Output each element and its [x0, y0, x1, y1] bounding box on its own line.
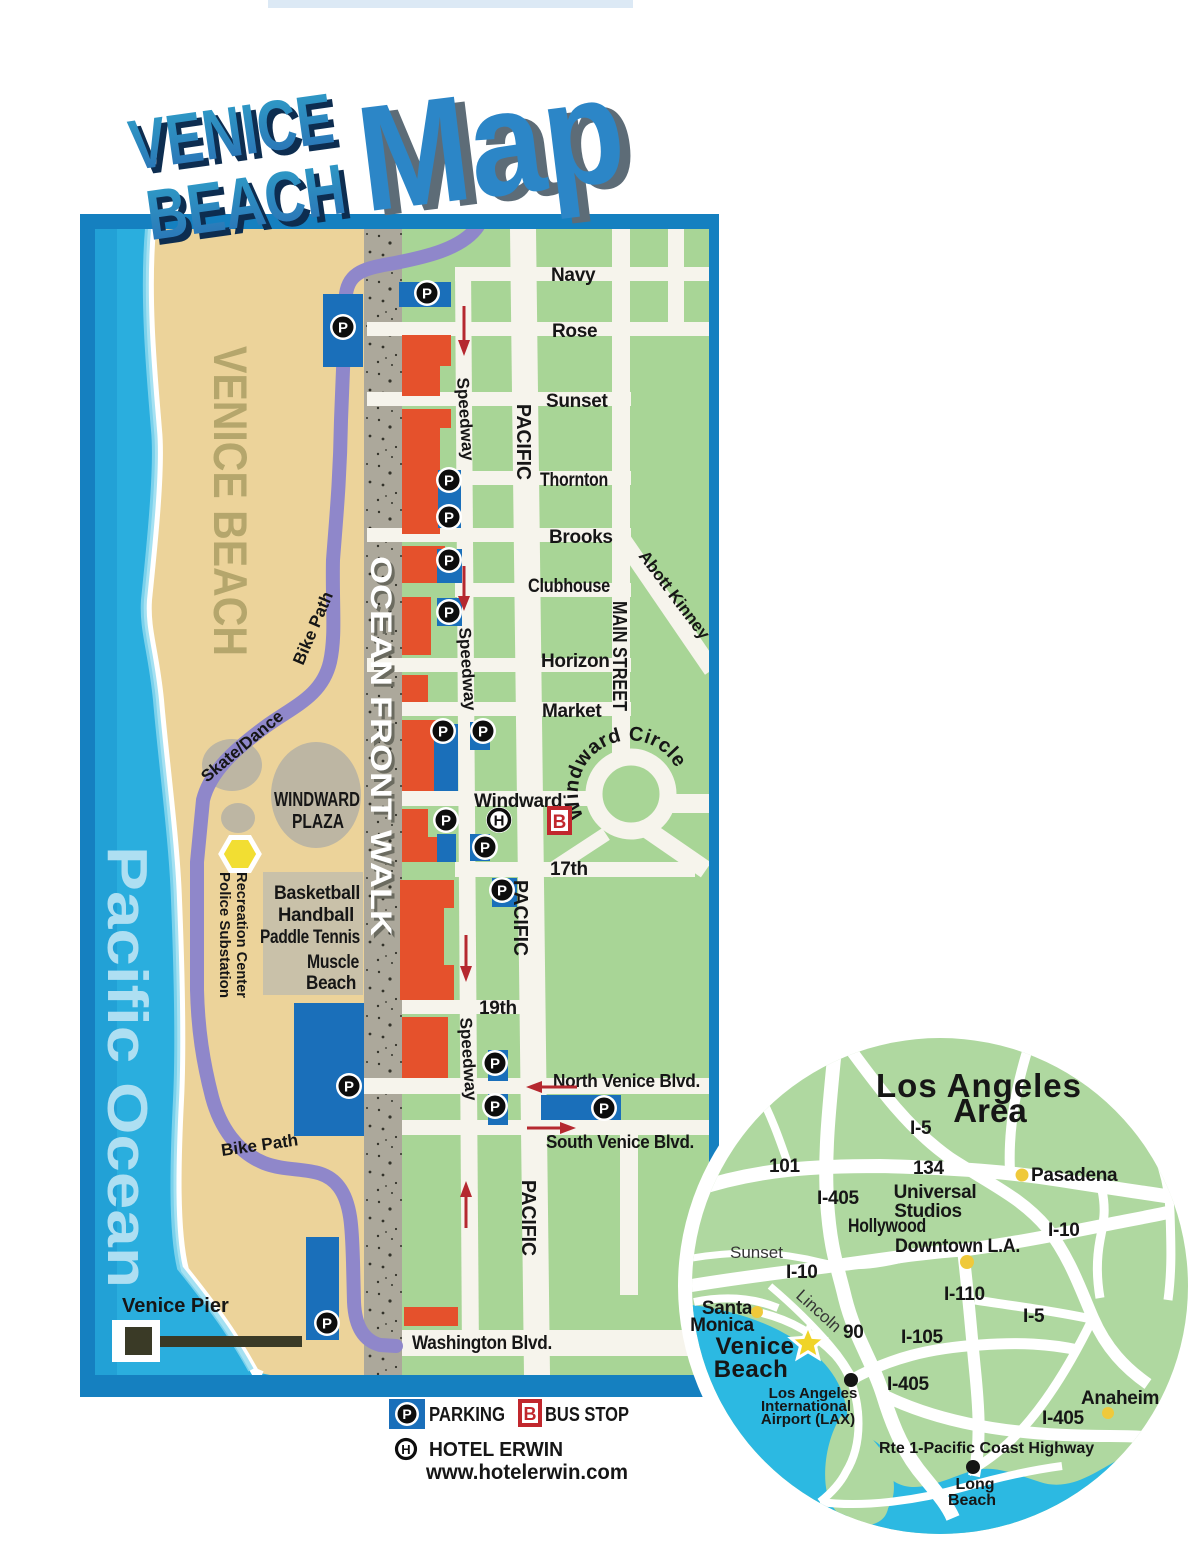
svg-text:PACIFIC: PACIFIC: [512, 404, 534, 480]
svg-text:Beach: Beach: [948, 1492, 996, 1509]
svg-text:Thornton: Thornton: [540, 470, 608, 491]
svg-text:19th: 19th: [479, 998, 517, 1019]
svg-text:Venice Pier: Venice Pier: [122, 1295, 229, 1317]
svg-text:Anaheim: Anaheim: [1081, 1388, 1159, 1409]
svg-text:I-405: I-405: [1042, 1408, 1085, 1429]
svg-text:Downtown L.A.: Downtown L.A.: [895, 1236, 1020, 1257]
svg-text:P: P: [490, 1056, 500, 1073]
svg-text:www.hotelerwin.com: www.hotelerwin.com: [425, 1461, 628, 1484]
svg-text:Handball: Handball: [278, 905, 354, 926]
svg-text:Washington Blvd.: Washington Blvd.: [412, 1333, 552, 1354]
svg-text:P: P: [490, 1099, 500, 1116]
svg-text:90: 90: [843, 1322, 864, 1343]
svg-text:WINDWARD: WINDWARD: [274, 789, 360, 811]
svg-text:P: P: [480, 840, 490, 857]
svg-text:South Venice Blvd.: South Venice Blvd.: [546, 1132, 694, 1152]
svg-text:Police Substation: Police Substation: [216, 872, 233, 998]
svg-text:Map: Map: [349, 44, 633, 243]
svg-text:I-105: I-105: [901, 1327, 944, 1348]
svg-text:I-5: I-5: [1023, 1306, 1045, 1327]
svg-text:Rose: Rose: [552, 321, 597, 342]
svg-text:Market: Market: [542, 701, 602, 722]
svg-text:P: P: [599, 1101, 609, 1118]
svg-text:P: P: [344, 1079, 354, 1096]
svg-text:P: P: [322, 1316, 332, 1333]
svg-text:HOTEL ERWIN: HOTEL ERWIN: [429, 1439, 563, 1461]
svg-text:I-405: I-405: [817, 1188, 860, 1209]
svg-text:PLAZA: PLAZA: [292, 811, 344, 833]
svg-text:I-110: I-110: [944, 1284, 985, 1305]
svg-text:Long: Long: [955, 1476, 994, 1493]
svg-text:Beach: Beach: [306, 973, 356, 994]
svg-text:Brooks: Brooks: [549, 527, 613, 548]
svg-text:Rte 1-Pacific Coast Highway: Rte 1-Pacific Coast Highway: [879, 1440, 1094, 1457]
svg-text:Recreation Center: Recreation Center: [233, 872, 250, 998]
svg-text:Muscle: Muscle: [307, 952, 359, 973]
svg-text:Clubhouse: Clubhouse: [528, 576, 610, 597]
svg-text:17th: 17th: [550, 859, 588, 880]
svg-text:I-5: I-5: [910, 1118, 932, 1139]
svg-text:Sunset: Sunset: [730, 1243, 783, 1262]
svg-text:BUS STOP: BUS STOP: [545, 1404, 629, 1426]
svg-text:P: P: [497, 883, 507, 900]
svg-text:P: P: [444, 510, 454, 527]
svg-text:P: P: [441, 813, 451, 830]
svg-text:P: P: [444, 605, 454, 622]
svg-text:P: P: [438, 724, 448, 741]
svg-text:P: P: [422, 286, 432, 303]
svg-text:Hollywood: Hollywood: [848, 1216, 926, 1237]
svg-text:P: P: [478, 724, 488, 741]
svg-text:Horizon: Horizon: [541, 651, 610, 672]
svg-text:PACIFIC: PACIFIC: [517, 1180, 539, 1256]
svg-text:I-10: I-10: [786, 1262, 818, 1283]
svg-text:P: P: [402, 1406, 411, 1422]
svg-text:Sunset: Sunset: [546, 391, 609, 412]
svg-text:101: 101: [769, 1156, 801, 1177]
svg-text:MAIN STREET: MAIN STREET: [608, 601, 630, 711]
svg-text:VENICE BEACH: VENICE BEACH: [204, 346, 257, 656]
svg-text:Pasadena: Pasadena: [1031, 1165, 1118, 1186]
svg-text:I-10: I-10: [1048, 1220, 1080, 1241]
svg-text:Area: Area: [953, 1092, 1027, 1129]
svg-text:134: 134: [913, 1158, 945, 1179]
svg-text:P: P: [444, 473, 454, 490]
svg-text:Beach: Beach: [714, 1356, 789, 1383]
svg-text:Navy: Navy: [551, 265, 596, 286]
svg-text:Universal: Universal: [894, 1182, 977, 1203]
svg-text:P: P: [444, 553, 454, 570]
svg-text:OCEAN FRONT WALK: OCEAN FRONT WALK: [364, 556, 397, 936]
svg-text:B: B: [553, 812, 567, 833]
svg-text:Pacific Ocean: Pacific Ocean: [95, 846, 159, 1288]
svg-text:Airport (LAX): Airport (LAX): [761, 1411, 855, 1428]
svg-text:Basketball: Basketball: [274, 883, 360, 904]
svg-text:H: H: [494, 813, 505, 830]
svg-text:B: B: [524, 1404, 537, 1424]
svg-text:Paddle Tennis: Paddle Tennis: [260, 927, 360, 948]
svg-text:P: P: [338, 320, 348, 337]
svg-text:H: H: [401, 1442, 410, 1457]
svg-text:I-405: I-405: [887, 1374, 930, 1395]
svg-text:PARKING: PARKING: [429, 1404, 505, 1426]
